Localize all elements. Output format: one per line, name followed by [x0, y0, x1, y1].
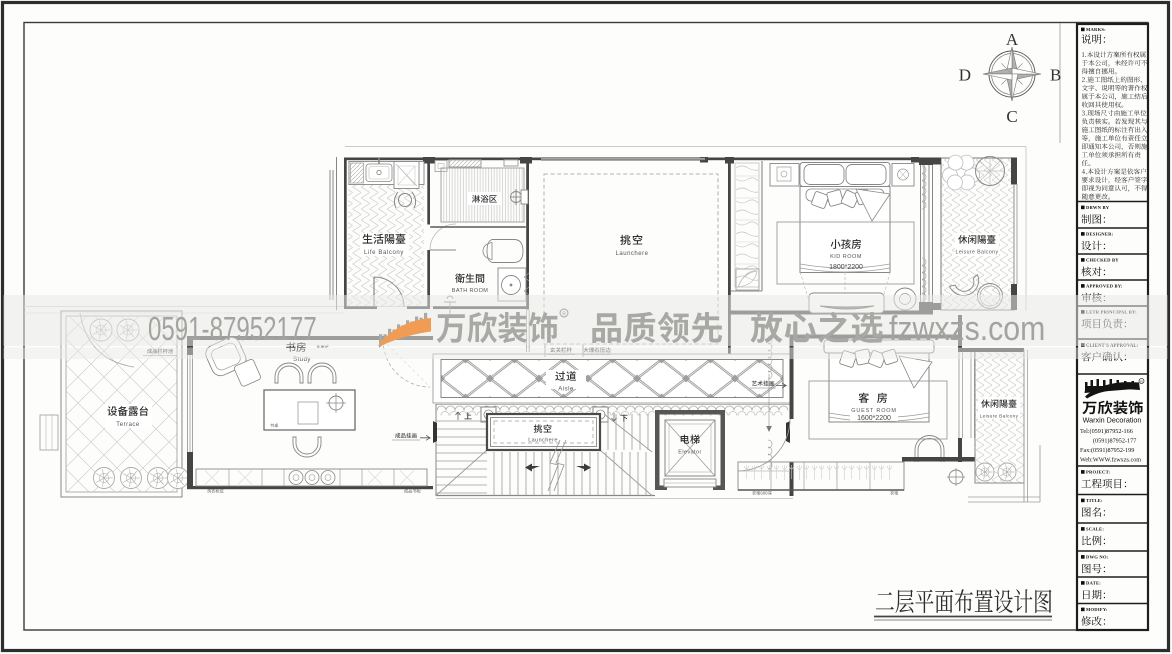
svg-text:APPROVED BY:: APPROVED BY: — [1086, 284, 1123, 289]
svg-text:SCALE:: SCALE: — [1086, 527, 1104, 532]
svg-text:DWG NO:: DWG NO: — [1086, 555, 1109, 560]
svg-text:Tel:(0591)87952-166: Tel:(0591)87952-166 — [1080, 428, 1133, 435]
svg-text:Terrace: Terrace — [116, 422, 140, 428]
svg-text:MARKS:: MARKS: — [1086, 27, 1106, 32]
svg-text:BATH ROOM: BATH ROOM — [452, 288, 489, 294]
svg-text:D: D — [959, 66, 971, 85]
svg-text:1600*2200: 1600*2200 — [857, 415, 891, 422]
svg-text:MODIFY:: MODIFY: — [1086, 607, 1108, 612]
svg-text:Aisle: Aisle — [558, 387, 574, 393]
svg-text:Leisure Balcony: Leisure Balcony — [956, 250, 999, 256]
svg-text:DATE:: DATE: — [1086, 581, 1101, 586]
svg-text:DESIGNER:: DESIGNER: — [1086, 232, 1114, 237]
svg-text:Warxin Decoration: Warxin Decoration — [1083, 416, 1142, 425]
svg-text:CHECKED BY: CHECKED BY — [1086, 258, 1119, 263]
svg-text:PROJECT:: PROJECT: — [1086, 470, 1110, 475]
svg-text:KID ROOM: KID ROOM — [830, 254, 862, 260]
svg-text:A: A — [1006, 30, 1019, 49]
svg-text:Elevator: Elevator — [678, 450, 701, 456]
svg-text:(0591)87952-177: (0591)87952-177 — [1093, 438, 1136, 445]
svg-text:0591-87952177: 0591-87952177 — [148, 311, 317, 348]
svg-text:C: C — [1006, 107, 1017, 126]
svg-text:1800*2200: 1800*2200 — [829, 264, 863, 271]
svg-text:DRWN BY: DRWN BY — [1086, 205, 1110, 210]
svg-text:Launchere: Launchere — [528, 438, 558, 444]
svg-text:fzwxzs.com: fzwxzs.com — [889, 309, 1045, 347]
svg-text:Fax:(0591)87952-199: Fax:(0591)87952-199 — [1080, 447, 1134, 454]
svg-text:R: R — [562, 312, 566, 318]
svg-text:Life Balcony: Life Balcony — [364, 250, 404, 256]
svg-text:TITLE:: TITLE: — [1086, 498, 1103, 503]
svg-text:Web:WWW.fzwxzs.com: Web:WWW.fzwxzs.com — [1080, 457, 1141, 464]
svg-text:Leisure Balcony: Leisure Balcony — [980, 414, 1019, 420]
svg-text:B: B — [1050, 66, 1061, 85]
svg-text:Launchere: Launchere — [616, 251, 649, 257]
